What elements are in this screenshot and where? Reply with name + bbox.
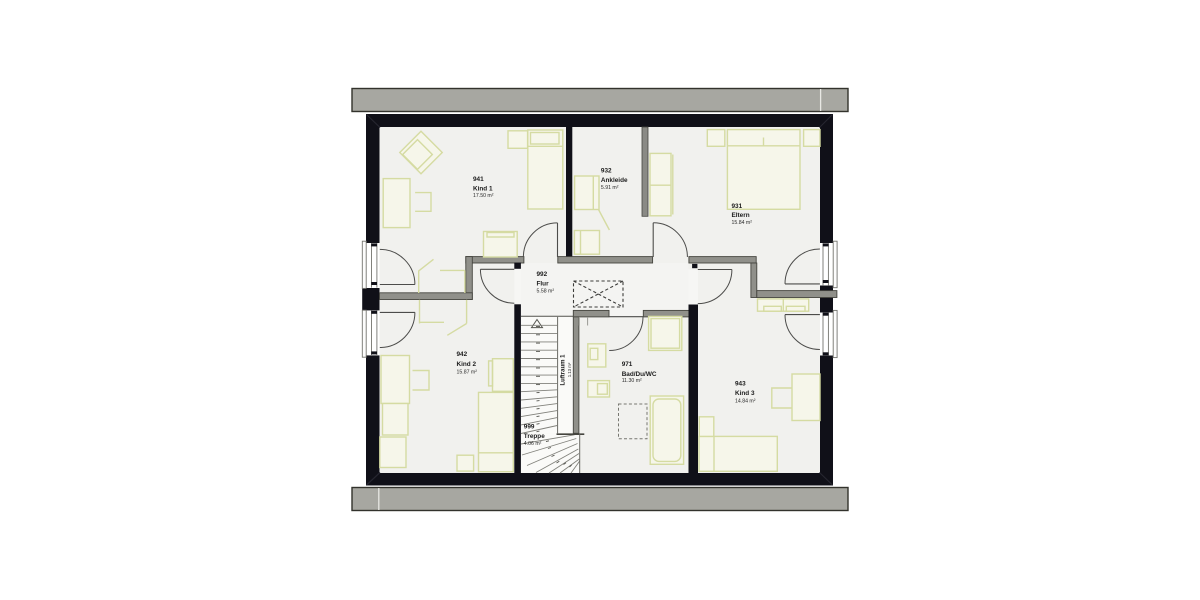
- svg-text:15.87 m²: 15.87 m²: [457, 370, 478, 376]
- svg-text:1.13 m²: 1.13 m²: [567, 362, 572, 377]
- svg-text:Flur: Flur: [537, 280, 550, 287]
- svg-text:932: 932: [601, 168, 612, 175]
- svg-text:971: 971: [622, 361, 633, 368]
- svg-text:943: 943: [735, 381, 746, 388]
- svg-text:Kind 2: Kind 2: [457, 361, 477, 368]
- svg-text:999: 999: [524, 424, 535, 431]
- svg-text:941: 941: [473, 176, 484, 183]
- svg-text:14.84 m²: 14.84 m²: [735, 399, 756, 405]
- svg-text:Bad/Du/WC: Bad/Du/WC: [622, 371, 657, 378]
- svg-text:11.30 m²: 11.30 m²: [622, 378, 642, 384]
- svg-text:17.50 m²: 17.50 m²: [473, 193, 494, 199]
- svg-text:Ankleide: Ankleide: [601, 177, 628, 184]
- svg-text:931: 931: [732, 203, 743, 210]
- svg-text:Kind 3: Kind 3: [735, 390, 755, 397]
- svg-text:Treppe: Treppe: [524, 433, 545, 440]
- svg-text:Kind 1: Kind 1: [473, 186, 493, 193]
- svg-text:5.91 m²: 5.91 m²: [601, 185, 619, 191]
- svg-text:15.84 m²: 15.84 m²: [732, 220, 753, 226]
- svg-text:992: 992: [537, 271, 548, 278]
- svg-text:Luftraum 1: Luftraum 1: [561, 354, 567, 386]
- svg-text:4.06 m²: 4.06 m²: [524, 441, 542, 447]
- svg-text:Eltern: Eltern: [732, 212, 750, 219]
- svg-text:942: 942: [457, 351, 468, 358]
- svg-text:5.58 m²: 5.58 m²: [537, 288, 555, 294]
